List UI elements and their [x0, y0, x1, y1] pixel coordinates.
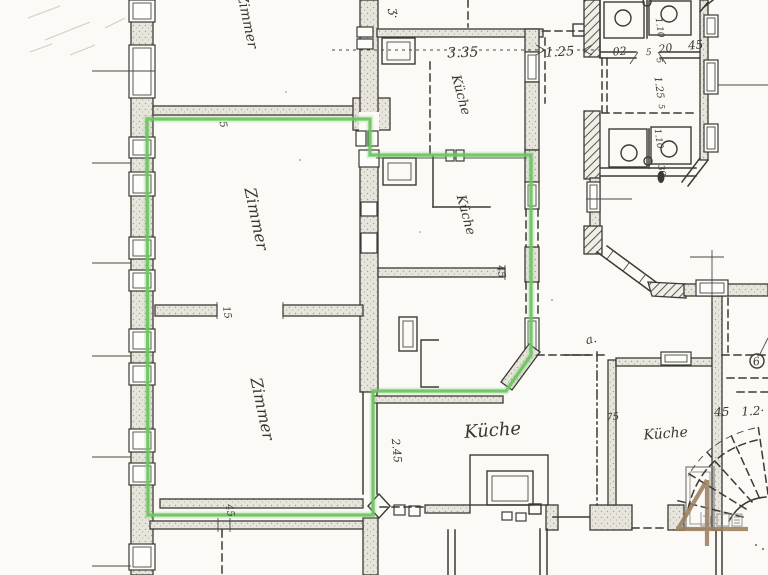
chamfer [682, 158, 708, 186]
open-cupboard [421, 340, 439, 387]
toilet [615, 10, 631, 26]
room-label-zimmer-1: Zimmer [240, 185, 272, 254]
room-label-zimmer-2: Zimmer [246, 375, 278, 444]
mid-room-wall [378, 268, 505, 277]
window [704, 15, 718, 37]
left-wall [608, 360, 616, 505]
window [129, 45, 155, 98]
window [129, 237, 155, 259]
window [129, 544, 155, 570]
kueche-north-wall [373, 396, 503, 403]
partition-middle [155, 302, 363, 319]
dimension-75: 75 [606, 411, 620, 423]
room-label-kueche-mid: Küche [453, 192, 478, 237]
zimmer-east-wall-band [356, 0, 379, 392]
wc-block [584, 0, 768, 186]
window [129, 270, 155, 291]
cupboard [399, 317, 417, 351]
window-sill-ticks [92, 71, 131, 566]
dimension-1-25-v: 1.25 [651, 76, 665, 100]
window [704, 124, 718, 152]
dimension-45-stair: 45 [713, 405, 730, 420]
dimension-5-c: 5 [655, 57, 665, 64]
stairwell [537, 298, 768, 521]
window [587, 182, 600, 212]
room-label-kueche-top: Küche [448, 72, 473, 117]
hearth [470, 455, 548, 505]
note-a: a. [584, 331, 598, 347]
dimension-15: 15 [220, 305, 233, 319]
room-label-kueche-right: Küche [642, 424, 688, 443]
big-kueche [380, 352, 684, 575]
middle-rooms [373, 62, 527, 403]
window [704, 60, 718, 94]
room-label-zimmer-top: Zimmer [233, 0, 261, 51]
dimension-02: 02 [612, 44, 627, 58]
window [129, 137, 155, 158]
zimmer2-bottom-wall [160, 499, 363, 508]
dimension-20: 20 [657, 41, 674, 56]
room-label-kueche-main: Küche [462, 418, 521, 443]
floor-plan-scan: 4 [0, 0, 768, 575]
dimension-1-2: 1.2· [741, 403, 765, 418]
corridor-and-chamfer [584, 178, 768, 302]
window [129, 329, 155, 352]
dimension-30: 30 [655, 164, 667, 177]
dimension-45-mid: 45 [494, 263, 507, 278]
dimension-1-25: 1.25 [545, 44, 575, 60]
dimension-5-top: 5 [216, 120, 228, 128]
dimension-5: 5 [646, 48, 653, 58]
floor-plan-drawing: Zimmer Zimmer Zimmer Küche Küche Küche K… [0, 0, 768, 575]
dimension-2-45: 2.45 [389, 437, 405, 464]
dimension-3-35: 3.35 [447, 44, 479, 61]
dimension-45: 45 [686, 37, 703, 52]
note-scribble: ʒ· [387, 6, 403, 20]
bottom-kueche-top-wall [150, 518, 363, 575]
labels: Zimmer Zimmer Zimmer Küche Küche Küche K… [216, 0, 764, 518]
window [129, 172, 155, 196]
dimension-1-10-b: 1.10 [652, 128, 665, 150]
partition-top [153, 106, 360, 115]
wc-stall [604, 2, 644, 38]
window [129, 0, 155, 22]
dimension-5-b: 5 [657, 104, 667, 110]
toilet [621, 145, 637, 161]
note-6: 6 [752, 355, 761, 369]
dimension-45-bottom: 45 [223, 502, 236, 517]
